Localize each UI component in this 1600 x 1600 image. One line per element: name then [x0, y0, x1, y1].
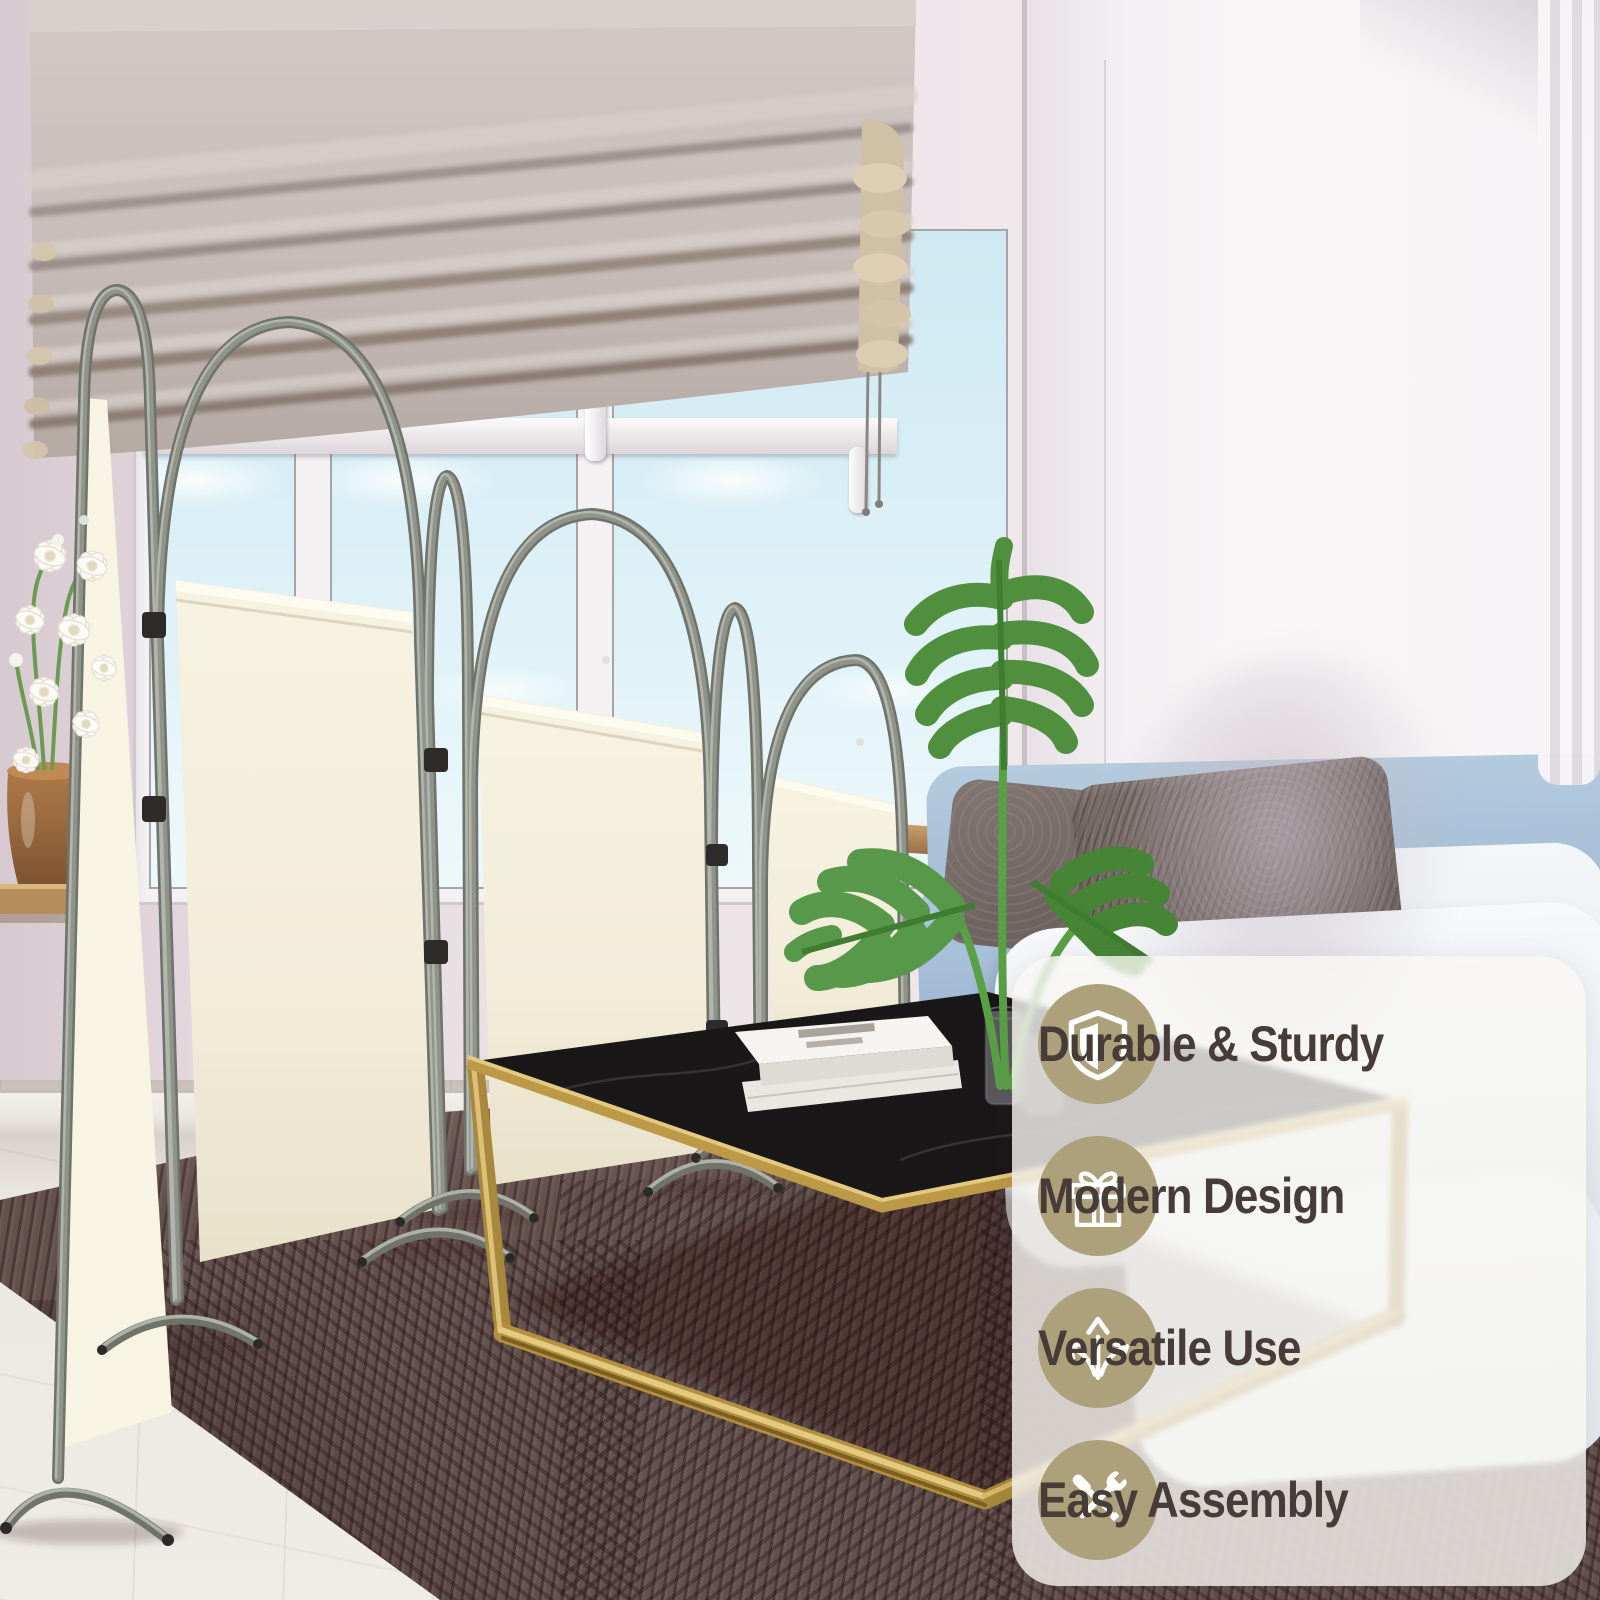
feature-label: Durable & Sturdy: [1038, 1015, 1383, 1073]
feature-label: Easy Assembly: [1038, 1471, 1348, 1529]
feature-row: Durable & Sturdy: [1038, 984, 1568, 1104]
feature-label: Versatile Use: [1038, 1319, 1301, 1377]
feature-row: Easy Assembly: [1038, 1440, 1568, 1560]
feature-label: Modern Design: [1038, 1167, 1344, 1225]
product-photo: Durable & Sturdy Modern Design: [0, 0, 1600, 1600]
feature-row: Versatile Use: [1038, 1288, 1568, 1408]
feature-row: Modern Design: [1038, 1136, 1568, 1256]
feature-panel: Durable & Sturdy Modern Design: [1012, 956, 1586, 1586]
